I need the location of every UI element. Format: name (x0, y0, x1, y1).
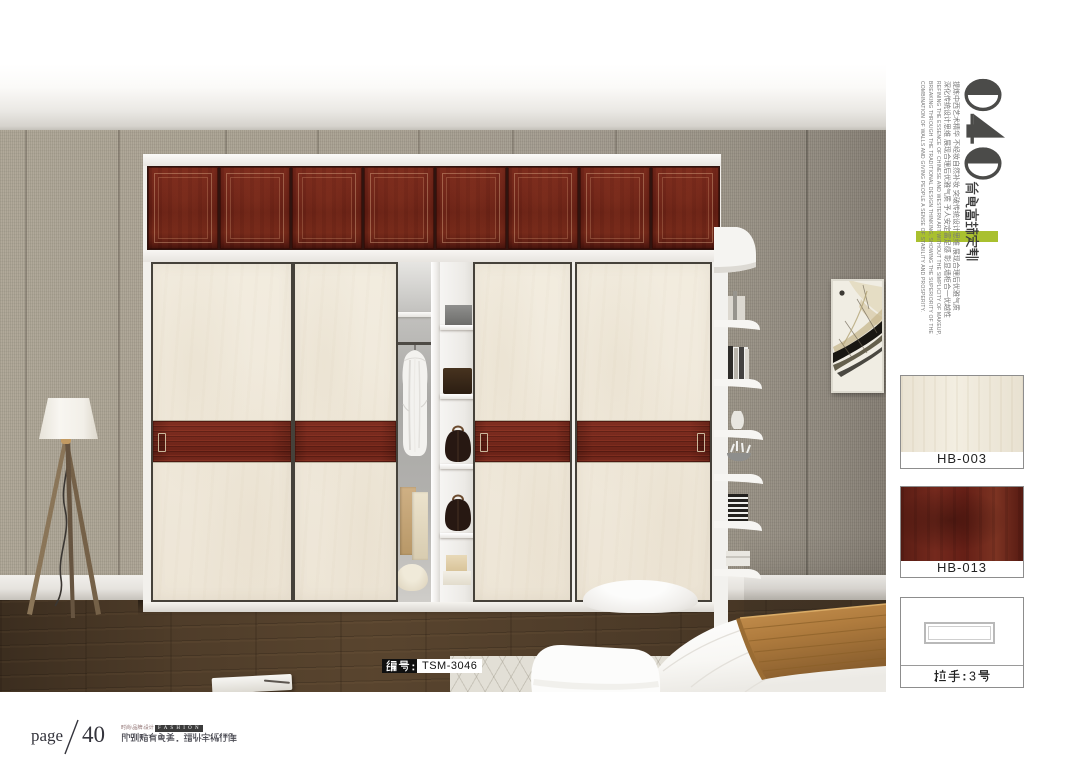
svg-text:3: 3 (969, 670, 976, 684)
